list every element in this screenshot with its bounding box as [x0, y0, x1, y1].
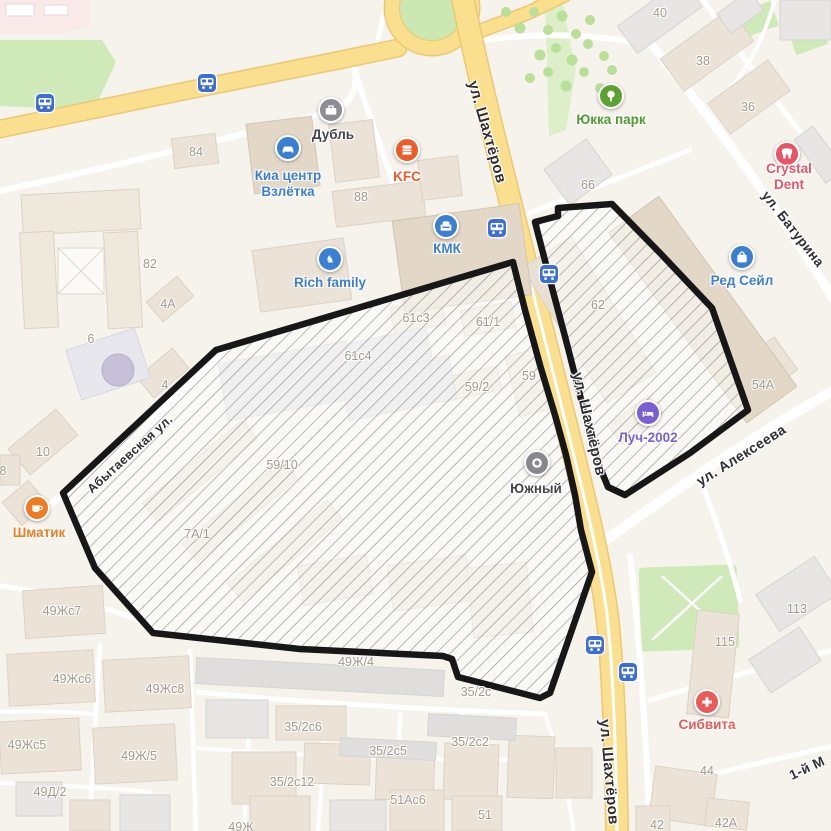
bed-icon[interactable]	[635, 400, 661, 426]
poi-label-luch-2002[interactable]: Луч-2002	[618, 430, 677, 446]
poi-label-kia-centr[interactable]: Киа центр Взлётка	[255, 168, 322, 200]
poi-label-sibvita[interactable]: Сибвита	[678, 717, 735, 733]
poi-label-kmk[interactable]: КМК	[433, 241, 461, 257]
transit-stop-icon[interactable]	[197, 73, 216, 92]
armchair-icon[interactable]	[433, 213, 459, 239]
poi-label-yukka-park[interactable]: Юкка парк	[576, 112, 645, 128]
tree-icon[interactable]	[598, 83, 624, 109]
briefcase-icon[interactable]	[318, 97, 344, 123]
medical-cross-icon[interactable]	[694, 689, 720, 715]
transit-stop-icon[interactable]	[487, 218, 506, 237]
ring-icon[interactable]	[524, 450, 550, 476]
poi-label-rich-family[interactable]: Rich family	[294, 275, 366, 291]
poi-label-red-sale[interactable]: Ред Сейл	[711, 273, 774, 289]
map-canvas[interactable]: ул. Шахтёровул. Шахтёровул. Шахтёровул. …	[0, 0, 831, 831]
poi-label-kfc[interactable]: KFC	[393, 169, 421, 185]
poi-label-crystal-dent[interactable]: Crystal Dent	[766, 161, 812, 193]
poi-label-dubl[interactable]: Дубль	[312, 127, 354, 143]
car-icon[interactable]	[275, 135, 301, 161]
coffee-cup-icon[interactable]	[24, 495, 50, 521]
rocking-horse-icon[interactable]: ♞	[317, 246, 343, 272]
transit-stop-icon[interactable]	[35, 93, 54, 112]
shopping-bag-icon[interactable]	[729, 244, 755, 270]
transit-stop-icon[interactable]	[539, 264, 558, 283]
svg-text:♞: ♞	[326, 254, 335, 265]
poi-label-yuzhny[interactable]: Южный	[510, 481, 562, 497]
poi-label-shmatik[interactable]: Шматик	[13, 525, 66, 541]
transit-stop-icon[interactable]	[585, 635, 604, 654]
burger-icon[interactable]	[394, 137, 420, 163]
transit-stop-icon[interactable]	[618, 662, 637, 681]
